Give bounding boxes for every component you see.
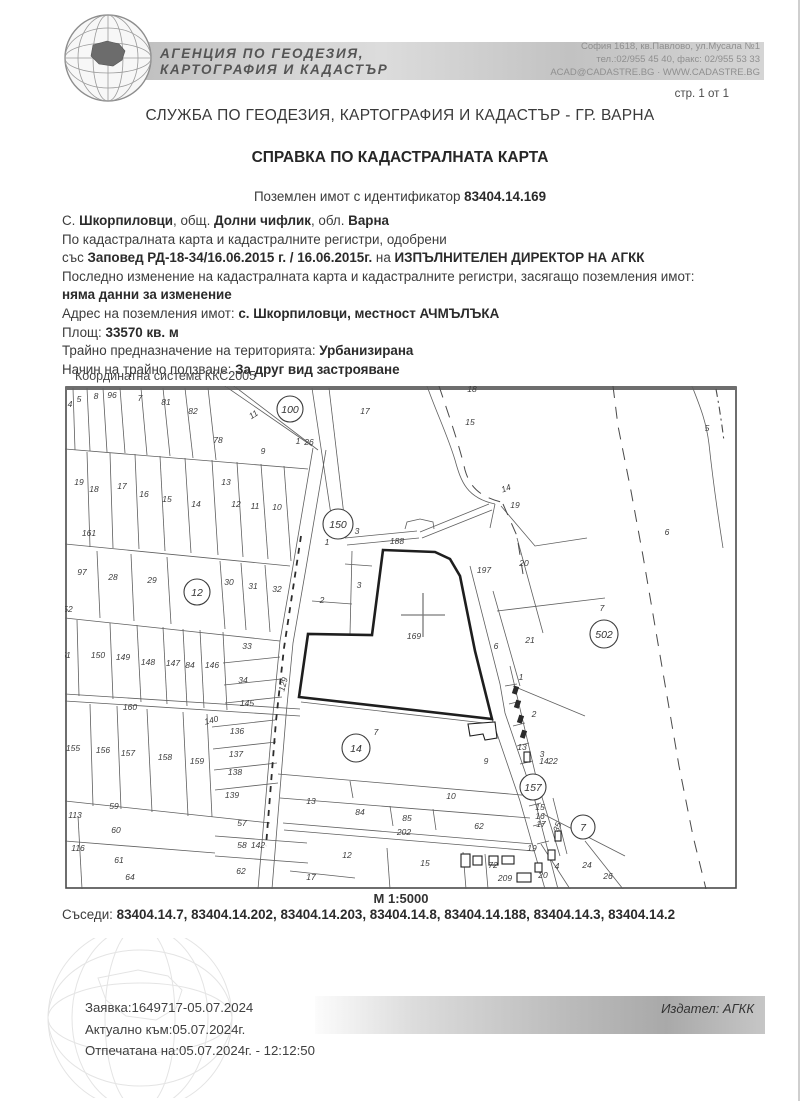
parcel-number-label: 7 (374, 727, 379, 737)
address-line2: тел.:02/955 45 40, факс: 02/955 53 33 (550, 53, 760, 66)
parcel-number-label: 78 (213, 435, 223, 445)
parcel-number-label: 158 (158, 752, 172, 762)
parcel-number-label: 1 (325, 537, 330, 547)
parcel-number-label: 161 (82, 528, 96, 538)
parcel-number-label: 9 (261, 446, 266, 456)
parcel-number-label: 26 (303, 437, 314, 447)
parcel-number-label: 64 (125, 872, 135, 882)
parcel-number-label: 15 (420, 858, 430, 868)
parcel-number-label: 31 (248, 581, 258, 591)
parcel-number-label: 202 (396, 827, 411, 837)
parcel-number-label: 5 (77, 394, 82, 404)
parcel-number-label: 4 (68, 399, 73, 409)
parcel-number-label: 9 (484, 756, 489, 766)
parcel-number-label: 113 (68, 810, 82, 820)
parcel-number-label: 51 (65, 650, 71, 660)
parcel-number-label: 2 (319, 595, 325, 605)
parcel-number-label: 60 (111, 825, 121, 835)
parcel-number-label: 149 (116, 652, 130, 662)
parcel-number-label: 146 (205, 660, 219, 670)
info-line: Площ: 33570 кв. м (62, 324, 762, 343)
parcel-number-label: 84 (185, 660, 195, 670)
parcel-number-label: 13 (306, 796, 316, 806)
agency-address: София 1618, кв.Павлово, ул.Мусала №1 тел… (550, 40, 760, 79)
parcel-number-label: 34 (238, 675, 248, 685)
parcel-number-label: 116 (71, 843, 85, 853)
info-line: По кадастралната карта и кадастралните р… (62, 231, 762, 250)
parcel-number-label: 17 (306, 872, 316, 882)
parcel-number-label: 32 (272, 584, 282, 594)
parcel-number-label: 17 (360, 406, 370, 416)
parcel-number-label: 2 (531, 709, 537, 719)
document-title: СПРАВКА ПО КАДАСТРАЛНАТА КАРТА (0, 149, 800, 167)
parcel-number-label: 15 (162, 494, 172, 504)
parcel-number-label: 11 (251, 501, 260, 511)
info-line: Последно изменение на кадастралната карт… (62, 268, 762, 287)
parcel-number-label: 33 (242, 641, 252, 651)
parcel-number-label: 160 (123, 702, 137, 712)
parcel-number-label: 7 (138, 393, 143, 403)
parcel-number-label: 142 (251, 840, 265, 850)
parcel-number-label: 15 (465, 417, 475, 427)
property-identifier: 83404.14.169 (464, 189, 546, 204)
parcel-number-label: 21 (524, 635, 535, 645)
parcel-number-label: 82 (188, 406, 198, 416)
parcel-number-label: 159 (190, 756, 204, 766)
parcel-number-label: 209 (497, 873, 512, 883)
parcel-number-label: 17 (536, 819, 546, 829)
parcel-number-label: 20 (518, 558, 529, 568)
parcel-number-label: 57 (237, 818, 247, 828)
info-line: Трайно предназначение на територията: Ур… (62, 342, 762, 361)
parcel-number-label: 85 (402, 813, 412, 823)
parcel-number-label: 20 (537, 870, 548, 880)
address-line1: София 1618, кв.Павлово, ул.Мусала №1 (550, 40, 760, 53)
agency-name: АГЕНЦИЯ ПО ГЕОДЕЗИЯ, КАРТОГРАФИЯ И КАДАС… (160, 46, 388, 78)
parcel-number-label: 52 (65, 604, 73, 614)
printed-on: Отпечатана на:05.07.2024г. - 12:12:50 (85, 1040, 315, 1062)
footer-info: Заявка:1649717-05.07.2024 Актуално към:0… (85, 997, 315, 1062)
parcel-number-label: 138 (228, 767, 242, 777)
parcel-number-label: 59 (109, 801, 119, 811)
parcel-number-label: 19 (74, 477, 84, 487)
parcel-number-label: 3 (355, 526, 360, 536)
municipal-number: 14 (350, 743, 362, 755)
cadastral-map: 4589678182789111261719181716151413121110… (65, 386, 737, 889)
parcel-number-label: 12 (231, 499, 241, 509)
info-line: Адрес на поземления имот: с. Шкорпиловци… (62, 305, 762, 324)
parcel-number-label: 156 (96, 745, 110, 755)
parcel-number-label: 96 (107, 390, 117, 400)
parcel-number-label: 4 (555, 861, 560, 871)
parcel-number-label: 145 (240, 698, 254, 708)
parcel-number-label: 3 (357, 580, 362, 590)
parcel-number-label: 18 (89, 484, 99, 494)
cadastral-reference-document: АГЕНЦИЯ ПО ГЕОДЕЗИЯ, КАРТОГРАФИЯ И КАДАС… (0, 0, 800, 1101)
parcel-number-label: 18 (467, 386, 477, 394)
parcel-number-label: 58 (237, 840, 247, 850)
parcel-number-label: 17 (117, 481, 127, 491)
parcel-number-label: 61 (114, 855, 124, 865)
request-number: Заявка:1649717-05.07.2024 (85, 997, 315, 1019)
parcel-number-label: 16 (139, 489, 149, 499)
municipal-number: 12 (191, 587, 203, 599)
parcel-number-label: 12 (342, 850, 352, 860)
parcel-number-label: 148 (141, 657, 155, 667)
parcel-number-label: 62 (236, 866, 246, 876)
parcel-number-label: 5 (705, 423, 710, 433)
coordinate-system-label: Координатна система ККС2005 (75, 369, 256, 383)
address-line3: ACAD@CADASTRE.BG · WWW.CADASTRE.BG (550, 66, 760, 79)
map-frame (66, 387, 736, 888)
municipal-number: 100 (281, 404, 299, 416)
parcel-number-label: 136 (230, 726, 244, 736)
parcel-number-label: 157 (121, 748, 135, 758)
parcel-number-label: 28 (107, 572, 118, 582)
parcel-number-label: 1 (519, 672, 524, 682)
parcel-number-label: 72 (488, 860, 498, 870)
municipal-number: 502 (595, 629, 613, 641)
neighbors-value: 83404.14.7, 83404.14.202, 83404.14.203, … (117, 907, 675, 922)
parcel-number-label: 19 (527, 843, 537, 853)
parcel-number-label: 155 (66, 743, 80, 753)
parcel-number-label: 188 (390, 536, 404, 546)
parcel-number-label: 29 (146, 575, 157, 585)
parcel-number-label: 24 (581, 860, 592, 870)
neighbors-line: Съседи: 83404.14.7, 83404.14.202, 83404.… (62, 907, 782, 922)
office-title: СЛУЖБА ПО ГЕОДЕЗИЯ, КАРТОГРАФИЯ И КАДАСТ… (0, 107, 800, 125)
property-info: С. Шкорпиловци, общ. Долни чифлик, обл. … (62, 212, 762, 379)
property-identifier-line: Поземлен имот с идентификатор 83404.14.1… (0, 189, 800, 204)
parcel-number-label: 6 (494, 641, 499, 651)
property-intro: Поземлен имот с идентификатор (254, 189, 464, 204)
parcel-number-label: 22 (547, 756, 558, 766)
parcel-number-label: 13 (517, 742, 527, 752)
parcel-number-label: 7 (600, 603, 605, 613)
parcel-number-label: 139 (225, 790, 239, 800)
info-line: С. Шкорпиловци, общ. Долни чифлик, обл. … (62, 212, 762, 231)
map-scale: М 1:5000 (65, 891, 737, 906)
info-line: няма данни за изменение (62, 286, 762, 305)
issuer: Издател: АГКК (661, 1001, 754, 1016)
municipal-number: 157 (524, 782, 543, 794)
valid-as-of: Актуално към:05.07.2024г. (85, 1019, 315, 1041)
agency-globe-logo (60, 10, 156, 106)
parcel-number-label: 150 (91, 650, 105, 660)
parcel-number-label: 84 (355, 807, 365, 817)
parcel-number-label: 197 (477, 565, 491, 575)
parcel-number-label: 14 (191, 499, 201, 509)
parcel-number-label: 169 (407, 631, 421, 641)
parcel-number-label: 13 (221, 477, 231, 487)
parcel-number-label: 19 (510, 500, 520, 510)
parcel-number-label: 6 (665, 527, 670, 537)
parcel-number-label: 1 (296, 436, 301, 446)
agency-name-line2: КАРТОГРАФИЯ И КАДАСТЪР (160, 62, 388, 77)
parcel-number-label: 8 (94, 391, 99, 401)
parcel-number-label: 137 (229, 749, 243, 759)
parcel-number-label: 26 (602, 871, 613, 881)
agency-name-line1: АГЕНЦИЯ ПО ГЕОДЕЗИЯ, (160, 46, 364, 61)
parcel-number-label: 147 (166, 658, 180, 668)
parcel-number-label: 81 (161, 397, 171, 407)
municipal-number: 150 (329, 519, 347, 531)
neighbors-label: Съседи: (62, 907, 117, 922)
parcel-number-label: 97 (77, 567, 87, 577)
page-indicator: стр. 1 от 1 (675, 88, 729, 100)
parcel-number-label: 10 (272, 502, 282, 512)
info-line: със Заповед РД-18-34/16.06.2015 г. / 16.… (62, 249, 762, 268)
parcel-number-label: 62 (474, 821, 484, 831)
parcel-number-label: 10 (446, 791, 456, 801)
parcel-number-label: 30 (224, 577, 234, 587)
